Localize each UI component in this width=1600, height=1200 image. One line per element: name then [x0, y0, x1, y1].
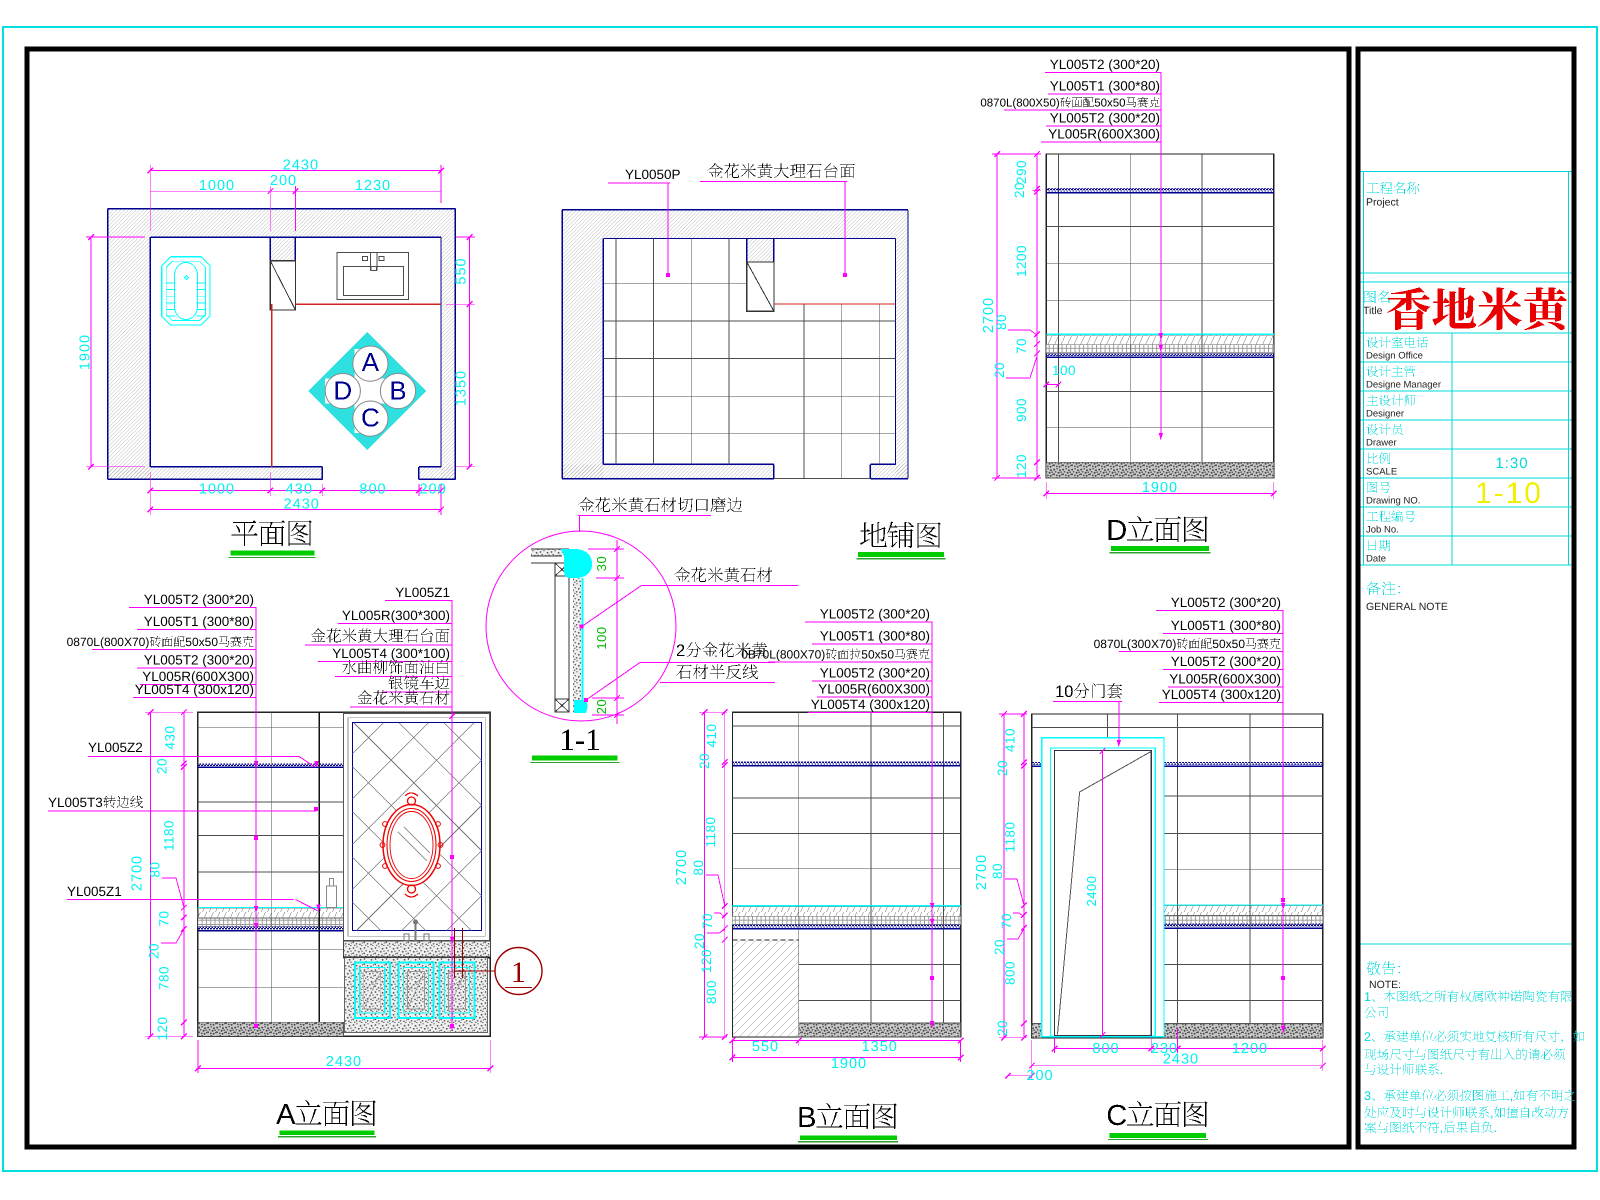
svg-text:YL005T2 (300*20): YL005T2 (300*20) — [1171, 654, 1281, 669]
svg-text:1900: 1900 — [78, 334, 94, 370]
svg-text:100: 100 — [1052, 363, 1076, 378]
svg-text:YL005Z2: YL005Z2 — [88, 740, 143, 755]
svg-text:YL005T1 (300*80): YL005T1 (300*80) — [1050, 79, 1160, 94]
svg-text:550: 550 — [454, 257, 470, 284]
svg-text:YL005T2 (300*20): YL005T2 (300*20) — [820, 666, 930, 681]
svg-text:Job No.: Job No. — [1366, 525, 1399, 536]
svg-text:YL005T1 (300*80): YL005T1 (300*80) — [144, 614, 254, 629]
svg-text:80: 80 — [994, 314, 1009, 330]
svg-text:410: 410 — [1003, 728, 1018, 752]
svg-text:YL005T2 (300*20): YL005T2 (300*20) — [144, 653, 254, 668]
svg-text:800: 800 — [1003, 961, 1018, 985]
svg-text:Designer: Designer — [1366, 409, 1404, 420]
svg-text:2430: 2430 — [326, 1054, 362, 1070]
svg-text:1:30: 1:30 — [1495, 455, 1528, 472]
svg-text:800: 800 — [359, 482, 386, 498]
svg-text:1900: 1900 — [1142, 480, 1178, 496]
svg-text:20: 20 — [1012, 182, 1027, 198]
svg-text:20: 20 — [594, 699, 609, 714]
svg-text:YL005T2 (300*20): YL005T2 (300*20) — [1050, 57, 1160, 72]
svg-text:2430: 2430 — [283, 157, 319, 173]
svg-text:430: 430 — [163, 725, 178, 749]
svg-text:.: . — [1440, 1063, 1444, 1077]
svg-text:YL005T2 (300*20): YL005T2 (300*20) — [1050, 111, 1160, 126]
svg-text:20: 20 — [147, 943, 162, 959]
svg-text:1180: 1180 — [162, 820, 177, 851]
svg-text:200: 200 — [1026, 1068, 1053, 1084]
svg-text:1900: 1900 — [831, 1056, 867, 1072]
svg-text:70: 70 — [999, 913, 1014, 929]
svg-text:1000: 1000 — [199, 482, 235, 498]
svg-text:30: 30 — [594, 556, 609, 571]
svg-text:290: 290 — [1014, 160, 1029, 184]
svg-text:50x50: 50x50 — [861, 648, 894, 662]
svg-text:2700: 2700 — [130, 855, 146, 891]
svg-text:Date: Date — [1366, 554, 1386, 565]
svg-text:Title: Title — [1363, 305, 1383, 317]
svg-text:3: 3 — [1364, 1089, 1371, 1103]
svg-text:1200: 1200 — [1232, 1041, 1268, 1057]
svg-text:YL005T2 (300*20): YL005T2 (300*20) — [144, 592, 254, 607]
svg-text:2700: 2700 — [974, 854, 990, 890]
svg-text:50x50: 50x50 — [1094, 98, 1125, 110]
svg-text:YL005R(600X300): YL005R(600X300) — [1048, 127, 1160, 142]
svg-text:1350: 1350 — [862, 1039, 898, 1055]
svg-text:0B70L(800X70): 0B70L(800X70) — [741, 648, 825, 662]
svg-text:70: 70 — [1014, 338, 1029, 354]
svg-text:YL005R(600X300): YL005R(600X300) — [818, 682, 930, 697]
svg-text:800: 800 — [1092, 1041, 1119, 1057]
svg-text:1000: 1000 — [199, 178, 235, 194]
svg-text:,: , — [1490, 1106, 1494, 1120]
svg-text:1180: 1180 — [1003, 821, 1018, 852]
svg-text:2430: 2430 — [1163, 1052, 1199, 1068]
svg-text:100: 100 — [594, 626, 609, 649]
svg-text:780: 780 — [157, 966, 172, 990]
svg-text:YL005T4 (300*100): YL005T4 (300*100) — [332, 646, 450, 661]
svg-text:550: 550 — [752, 1039, 779, 1055]
svg-text:20: 20 — [992, 939, 1007, 955]
svg-text:YL005T4 (300x120): YL005T4 (300x120) — [135, 682, 254, 697]
svg-text:1350: 1350 — [454, 370, 470, 406]
svg-text:YL005R(600X300): YL005R(600X300) — [1169, 672, 1281, 687]
svg-text:20: 20 — [995, 760, 1010, 776]
svg-text:120: 120 — [699, 949, 714, 973]
svg-text:200: 200 — [419, 482, 446, 498]
svg-text:1200: 1200 — [1014, 245, 1029, 277]
svg-text:YL005T2 (300*20): YL005T2 (300*20) — [1171, 595, 1281, 610]
svg-text:20: 20 — [992, 362, 1007, 378]
svg-text:Drawing NO.: Drawing NO. — [1366, 496, 1420, 507]
svg-text:800: 800 — [704, 980, 719, 1004]
svg-text:2430: 2430 — [284, 496, 320, 512]
svg-text:80: 80 — [148, 861, 163, 877]
svg-text:20: 20 — [692, 933, 707, 949]
svg-text:NOTE:: NOTE: — [1369, 979, 1401, 991]
svg-text:YL005T4 (300x120): YL005T4 (300x120) — [1162, 687, 1281, 702]
svg-text:2700: 2700 — [674, 849, 690, 885]
svg-text:YL005T1 (300*80): YL005T1 (300*80) — [820, 629, 930, 644]
svg-text:20: 20 — [995, 1020, 1010, 1036]
svg-text:50x50: 50x50 — [185, 635, 218, 649]
svg-text:YL005R(300*300): YL005R(300*300) — [342, 608, 450, 623]
svg-text:,: , — [1510, 1089, 1514, 1103]
svg-text:2400: 2400 — [1084, 876, 1099, 907]
svg-text:200: 200 — [270, 173, 297, 189]
svg-text:430: 430 — [286, 482, 313, 498]
svg-text:,: , — [1440, 1121, 1444, 1135]
svg-text:70: 70 — [700, 913, 715, 929]
svg-text:YL005T1 (300*80): YL005T1 (300*80) — [1171, 618, 1281, 633]
svg-text:GENERAL NOTE: GENERAL NOTE — [1366, 601, 1448, 613]
svg-text:1: 1 — [1364, 990, 1371, 1004]
svg-text:YL005T4 (300x120): YL005T4 (300x120) — [811, 697, 930, 712]
svg-text:1180: 1180 — [703, 816, 718, 847]
svg-text:YL005Z1: YL005Z1 — [67, 884, 122, 899]
svg-text:900: 900 — [1014, 398, 1029, 422]
svg-text:0870L(800X70): 0870L(800X70) — [67, 635, 150, 649]
svg-text:0870L(800X50): 0870L(800X50) — [980, 98, 1059, 110]
svg-text:80: 80 — [691, 859, 706, 875]
svg-text:80: 80 — [990, 863, 1005, 879]
svg-text:20: 20 — [697, 753, 712, 769]
svg-text:20: 20 — [155, 758, 170, 774]
svg-text:YL005Z1: YL005Z1 — [395, 585, 450, 600]
svg-text:Project: Project — [1366, 197, 1399, 209]
svg-text:YL005T2 (300*20): YL005T2 (300*20) — [820, 607, 930, 622]
svg-text:Drawer: Drawer — [1366, 438, 1397, 449]
svg-text:70: 70 — [157, 910, 172, 926]
svg-text:0870L(300X70): 0870L(300X70) — [1094, 637, 1177, 651]
svg-text:YL0050P: YL0050P — [625, 167, 681, 182]
svg-text:Designe Manager: Designe Manager — [1366, 380, 1441, 391]
svg-text:1230: 1230 — [355, 178, 391, 194]
svg-text:120: 120 — [155, 1016, 170, 1040]
svg-text:.: . — [1494, 1121, 1498, 1135]
svg-text:SCALE: SCALE — [1366, 467, 1397, 478]
svg-text:YL005T3: YL005T3 — [48, 795, 103, 810]
svg-text:2: 2 — [1364, 1030, 1371, 1044]
svg-text:120: 120 — [1014, 454, 1029, 478]
svg-text:Design Office: Design Office — [1366, 351, 1423, 362]
svg-text:410: 410 — [704, 723, 719, 747]
svg-text:50x50: 50x50 — [1212, 637, 1245, 651]
